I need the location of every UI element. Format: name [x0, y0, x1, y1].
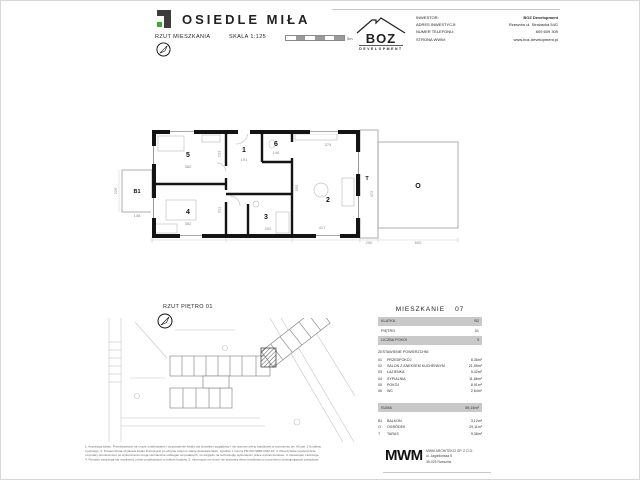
- dim-room5-width: 382: [185, 164, 192, 169]
- dim-balcony-width: 138: [134, 213, 141, 218]
- boz-logo-text: BOZ: [366, 31, 396, 46]
- investor-value: BOZ Development: [440, 14, 558, 21]
- dim-room3-width: 202: [265, 226, 272, 231]
- info-label: PIĘTRO: [381, 329, 395, 333]
- info-row-klatka: KLATKA B2: [378, 317, 482, 326]
- room-label-2: 2: [326, 197, 330, 204]
- dim-room1-width: 191: [241, 157, 248, 162]
- garden-label: O: [415, 183, 421, 190]
- site-plan-title: RZUT PIĘTRO 01: [163, 304, 213, 310]
- site-building: [170, 318, 330, 408]
- dim-room5-height: 233: [217, 150, 222, 157]
- dim-room2-width: 417: [319, 225, 326, 230]
- balcony-label: B1: [133, 189, 140, 195]
- architect-info: MWM ARCHITEKCI SP. Z O.O. ul. Jagiellońs…: [426, 449, 473, 465]
- investor-values: BOZ Development Rzeszów ul. Strażacka 54…: [440, 14, 558, 43]
- areas-heading: ZESTAWIENIE POWIERZCHNI: [378, 350, 482, 354]
- footer-divider: [383, 472, 491, 473]
- sum-row: SUMA 59,16m²: [378, 403, 482, 412]
- info-label: KLATKA: [381, 319, 395, 323]
- investor-value: Rzeszów ul. Strażacka 54G: [440, 21, 558, 28]
- info-value: 01: [475, 329, 479, 333]
- header-divider: [332, 9, 560, 10]
- room-label-1: 1: [242, 147, 246, 154]
- terrace-label: T: [365, 176, 369, 182]
- floor-plan-sheet: OSIEDLE MIŁA RZUT MIESZKANIA SKALA 1:125…: [0, 0, 640, 480]
- dim-room2-top-width: 374: [325, 142, 332, 147]
- dim-balcony-height: 226: [113, 187, 118, 194]
- investor-value: 609 609 309: [440, 28, 558, 35]
- apartment-number: 07: [455, 306, 464, 313]
- investor-value: www.boz-development.pl: [440, 36, 558, 43]
- dim-terrace-height: 472: [369, 190, 374, 197]
- mwm-architects-logo: MWM: [385, 447, 423, 464]
- info-label: LICZBA POKOI: [381, 338, 407, 342]
- page-title: OSIEDLE MIŁA: [182, 12, 310, 27]
- dim-garden-width: 600: [415, 240, 422, 245]
- sum-value: 59,16m²: [465, 406, 479, 410]
- interior-walls: [152, 132, 292, 236]
- dim-room4-width: 382: [185, 221, 192, 226]
- boz-development-logo: BOZ DEVELOPMENT: [352, 14, 410, 52]
- disclaimer-line: 4. Ponadto zastrzega się możliwość zmian…: [85, 458, 381, 462]
- extras-list: B1 BALKON 3,12m² O OGRÓDEK 29,11m² T TAR…: [378, 418, 482, 437]
- architect-city: 35-025 Rzeszów: [426, 460, 473, 465]
- plan-type-label: RZUT MIESZKANIA: [155, 34, 210, 40]
- info-value: 3: [477, 338, 479, 342]
- apartment-title-label: MIESZKANIE: [396, 306, 445, 313]
- room-label-4: 4: [186, 209, 190, 216]
- areas-list: 01 PRZEDPOKÓJ 8,36m² 02 SALON Z ANEKSEM …: [378, 357, 482, 395]
- info-row-liczba-pokoi: LICZBA POKOI 3: [378, 336, 482, 345]
- apartment-title: MIESZKANIE 07: [378, 306, 482, 313]
- room-label-6: 6: [274, 141, 278, 148]
- info-value: B2: [474, 319, 479, 323]
- terrace-outline: [360, 130, 378, 238]
- apartment-table: MIESZKANIE 07 KLATKA B2 PIĘTRO 01 LICZBA…: [378, 306, 482, 437]
- furniture-sketches: [155, 132, 354, 233]
- dim-room2-height: 555: [294, 184, 299, 191]
- site-plan-map: [75, 318, 355, 442]
- dim-room4-height: 311: [217, 206, 222, 213]
- scale-label: SKALA 1:125: [229, 34, 266, 40]
- scale-bar: 5m: [285, 35, 353, 41]
- room-label-5: 5: [186, 152, 190, 159]
- room-label-3: 3: [264, 214, 268, 221]
- apartment-floor-plan: 5 1 6 2 4 3 B1 T O 382 233 191 146 374 5…: [90, 112, 480, 287]
- highlighted-unit: [261, 348, 276, 367]
- dim-room6-width: 146: [273, 150, 280, 155]
- site-roads: [109, 318, 355, 442]
- north-arrow-icon: [156, 42, 171, 57]
- sum-label: SUMA: [381, 406, 392, 410]
- boz-logo-tagline: DEVELOPMENT: [359, 47, 402, 51]
- dim-terrace-width: 200: [366, 240, 373, 245]
- area-row: 06 WC 2,64m²: [378, 388, 482, 394]
- legal-disclaimer: 1. Aranżacja lokalu. Przedstawione na rz…: [85, 445, 381, 462]
- info-row-pietro: PIĘTRO 01: [378, 327, 482, 336]
- osiedle-mila-logo-icon: [155, 9, 177, 33]
- extra-row-taras: T TARAS 9,38m²: [378, 430, 482, 436]
